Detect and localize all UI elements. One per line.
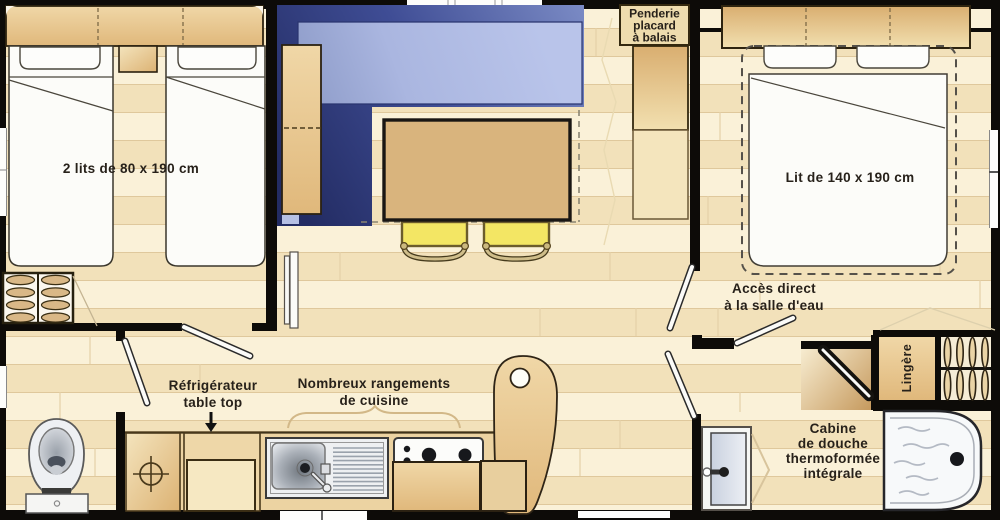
svg-text:2 lits de 80 x 190 cm: 2 lits de 80 x 190 cm [63, 161, 199, 176]
svg-text:table top: table top [184, 395, 243, 410]
svg-text:thermoformée: thermoformée [786, 451, 881, 466]
svg-text:à la salle d'eau: à la salle d'eau [724, 298, 824, 313]
svg-text:Accès direct: Accès direct [732, 281, 816, 296]
svg-text:Réfrigérateur: Réfrigérateur [169, 378, 258, 393]
svg-text:à balais: à balais [632, 31, 676, 45]
svg-text:Cabine: Cabine [810, 421, 857, 436]
svg-text:Nombreux rangements: Nombreux rangements [298, 376, 451, 391]
svg-text:de douche: de douche [798, 436, 868, 451]
svg-text:intégrale: intégrale [804, 466, 863, 481]
svg-text:Lingère: Lingère [900, 344, 914, 393]
svg-text:Lit de 140 x 190 cm: Lit de 140 x 190 cm [786, 170, 915, 185]
